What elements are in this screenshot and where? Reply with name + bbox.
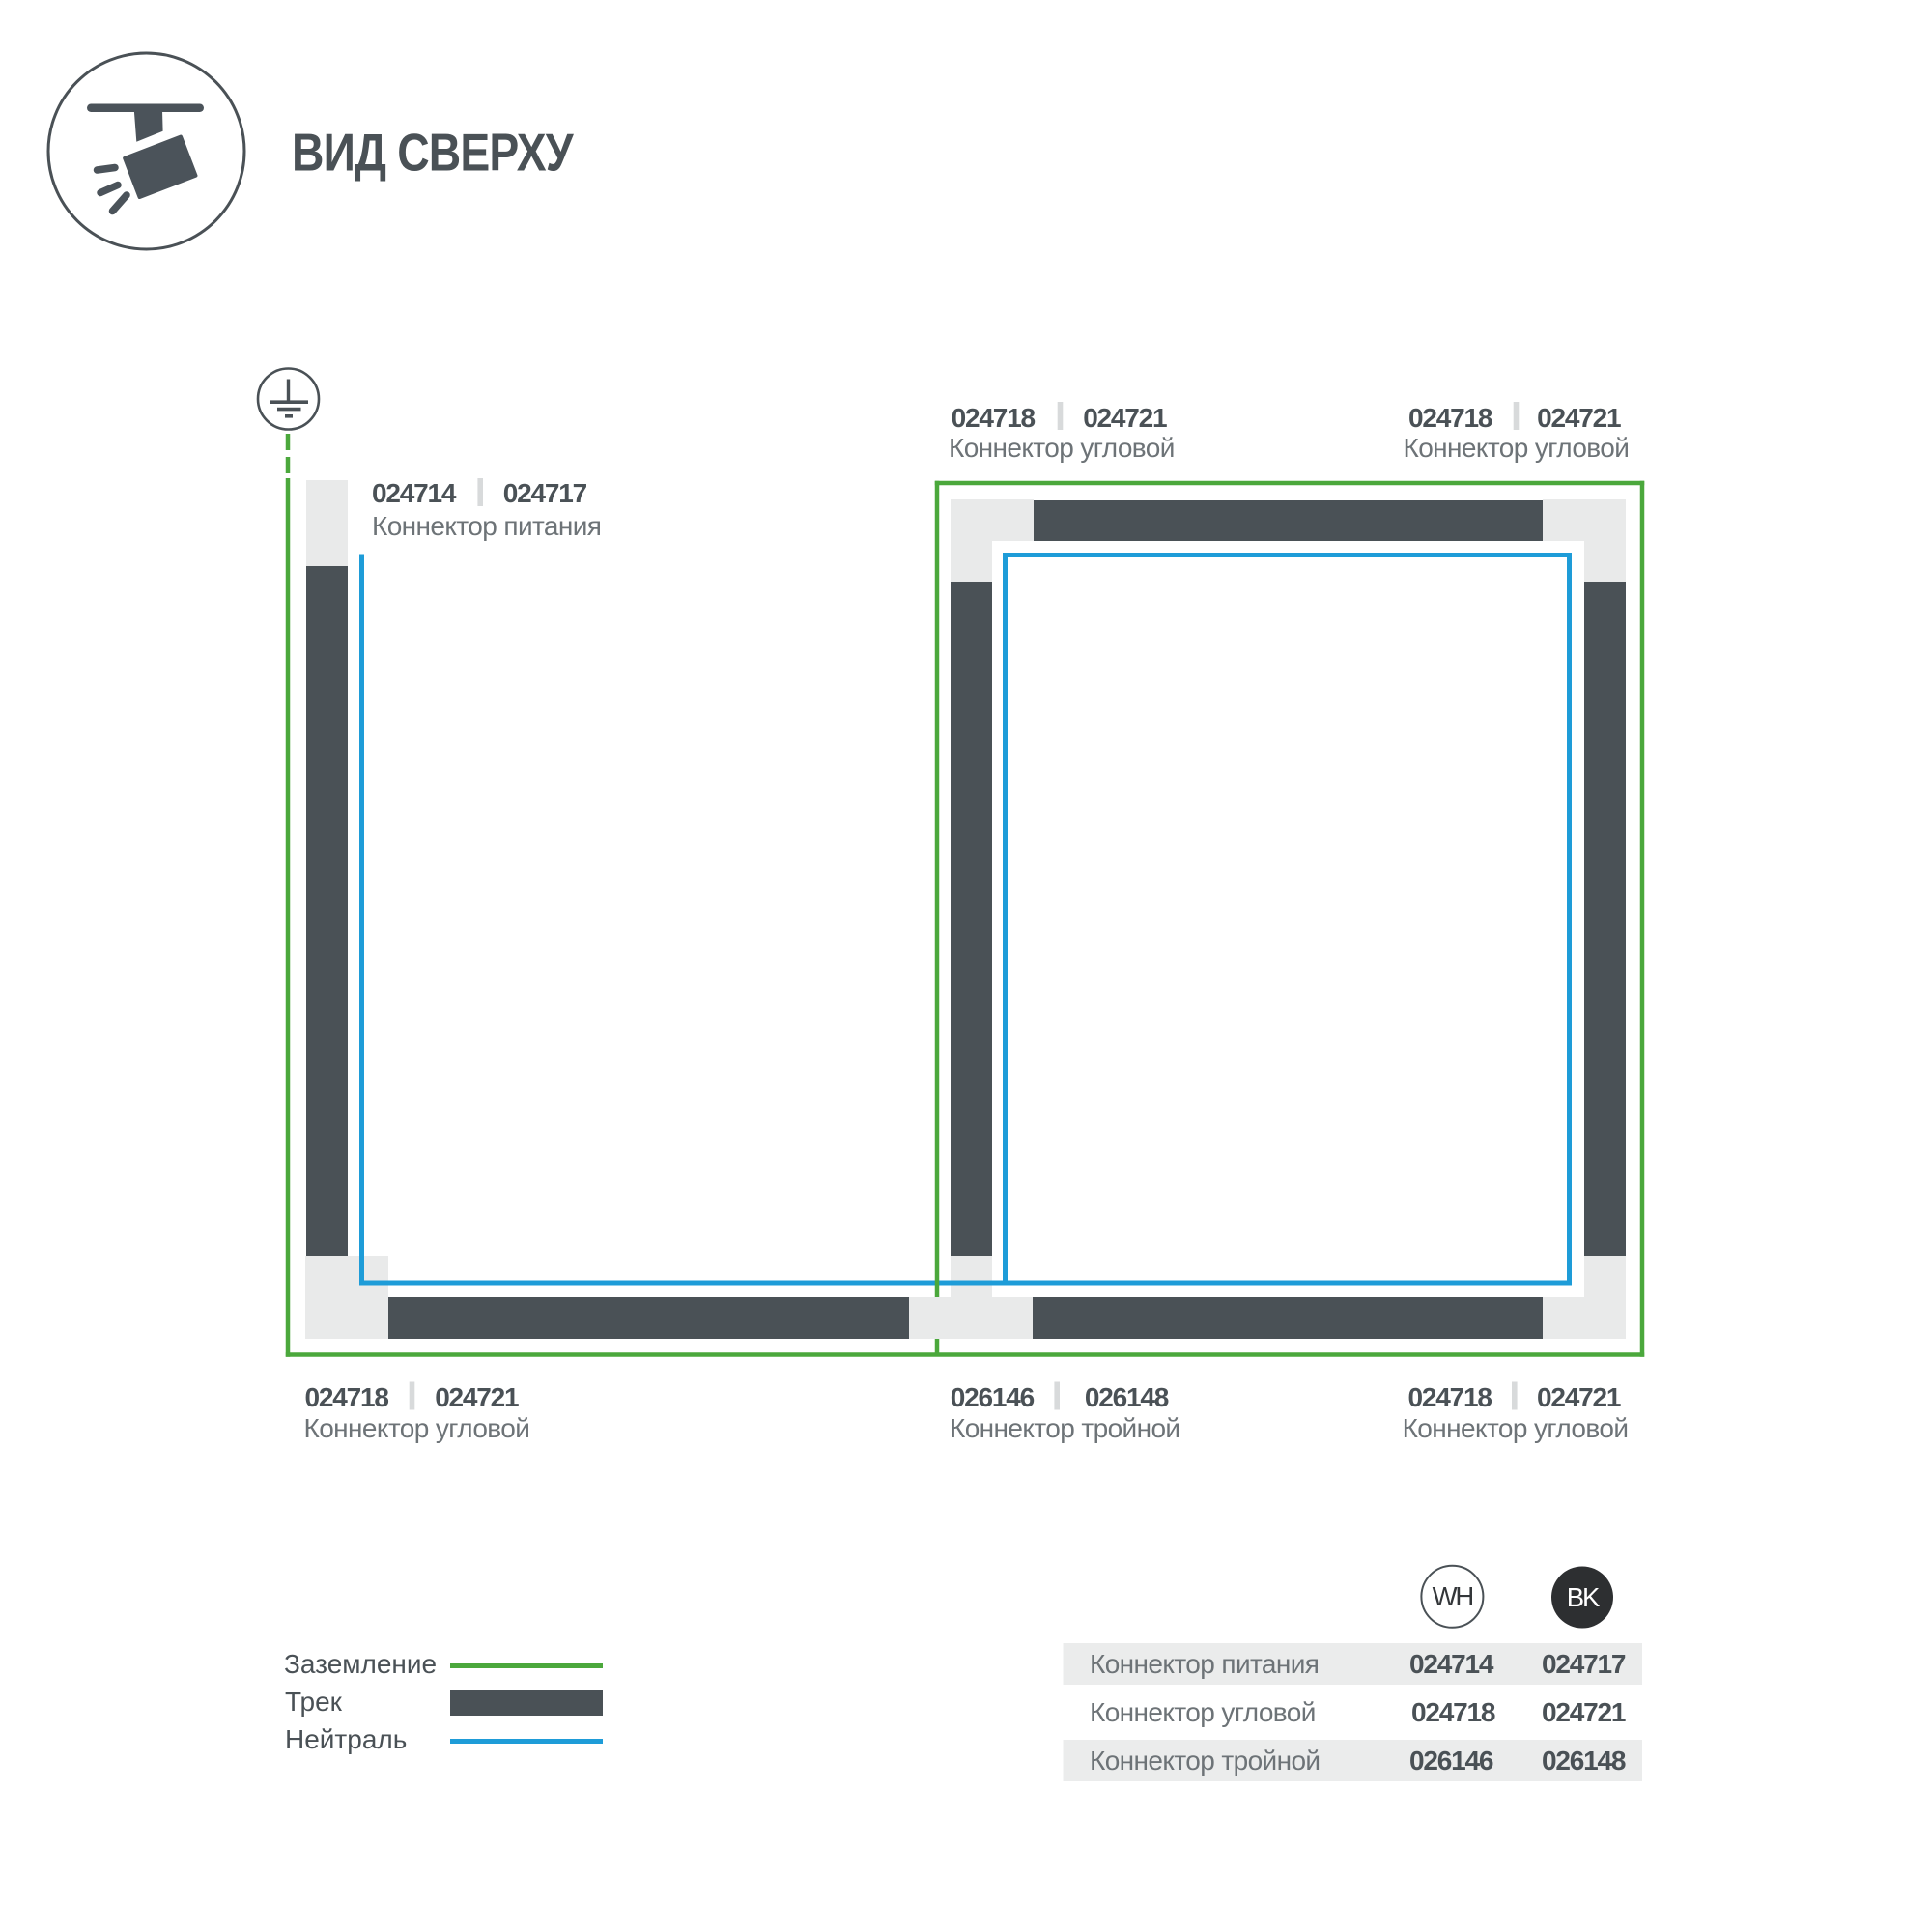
svg-text:026148: 026148 <box>1085 1382 1169 1412</box>
svg-text:024721: 024721 <box>435 1382 519 1412</box>
svg-text:024721: 024721 <box>1083 403 1167 433</box>
svg-text:Коннектор угловой: Коннектор угловой <box>1404 433 1630 463</box>
svg-text:024714: 024714 <box>1409 1649 1494 1679</box>
svg-text:ВИД СВЕРХУ: ВИД СВЕРХУ <box>292 123 575 183</box>
svg-text:024718: 024718 <box>1408 1382 1492 1412</box>
svg-text:024718: 024718 <box>952 403 1036 433</box>
svg-text:Коннектор угловой: Коннектор угловой <box>1090 1697 1316 1727</box>
svg-text:BK: BK <box>1567 1582 1601 1612</box>
svg-text:024718: 024718 <box>1411 1697 1495 1727</box>
svg-text:024721: 024721 <box>1542 1697 1626 1727</box>
svg-text:024714: 024714 <box>372 478 457 508</box>
svg-text:Коннектор питания: Коннектор питания <box>372 511 601 541</box>
svg-text:Нейтраль: Нейтраль <box>285 1724 407 1754</box>
svg-text:024717: 024717 <box>1542 1649 1626 1679</box>
svg-text:026146: 026146 <box>951 1382 1035 1412</box>
svg-text:Коннектор угловой: Коннектор угловой <box>1403 1413 1629 1443</box>
svg-text:024717: 024717 <box>503 478 587 508</box>
svg-text:024718: 024718 <box>305 1382 389 1412</box>
svg-text:Коннектор питания: Коннектор питания <box>1090 1649 1319 1679</box>
svg-text:024721: 024721 <box>1537 403 1621 433</box>
svg-text:Заземление: Заземление <box>284 1649 437 1679</box>
svg-text:024718: 024718 <box>1408 403 1492 433</box>
svg-text:Трек: Трек <box>285 1687 343 1717</box>
svg-text:026146: 026146 <box>1409 1746 1493 1776</box>
svg-text:Коннектор угловой: Коннектор угловой <box>304 1413 530 1443</box>
svg-text:Коннектор тройной: Коннектор тройной <box>1090 1746 1320 1776</box>
svg-text:Коннектор угловой: Коннектор угловой <box>949 433 1175 463</box>
svg-text:Коннектор тройной: Коннектор тройной <box>950 1413 1179 1443</box>
svg-text:026148: 026148 <box>1542 1746 1626 1776</box>
svg-text:024721: 024721 <box>1537 1382 1621 1412</box>
svg-text:WH: WH <box>1433 1581 1473 1611</box>
